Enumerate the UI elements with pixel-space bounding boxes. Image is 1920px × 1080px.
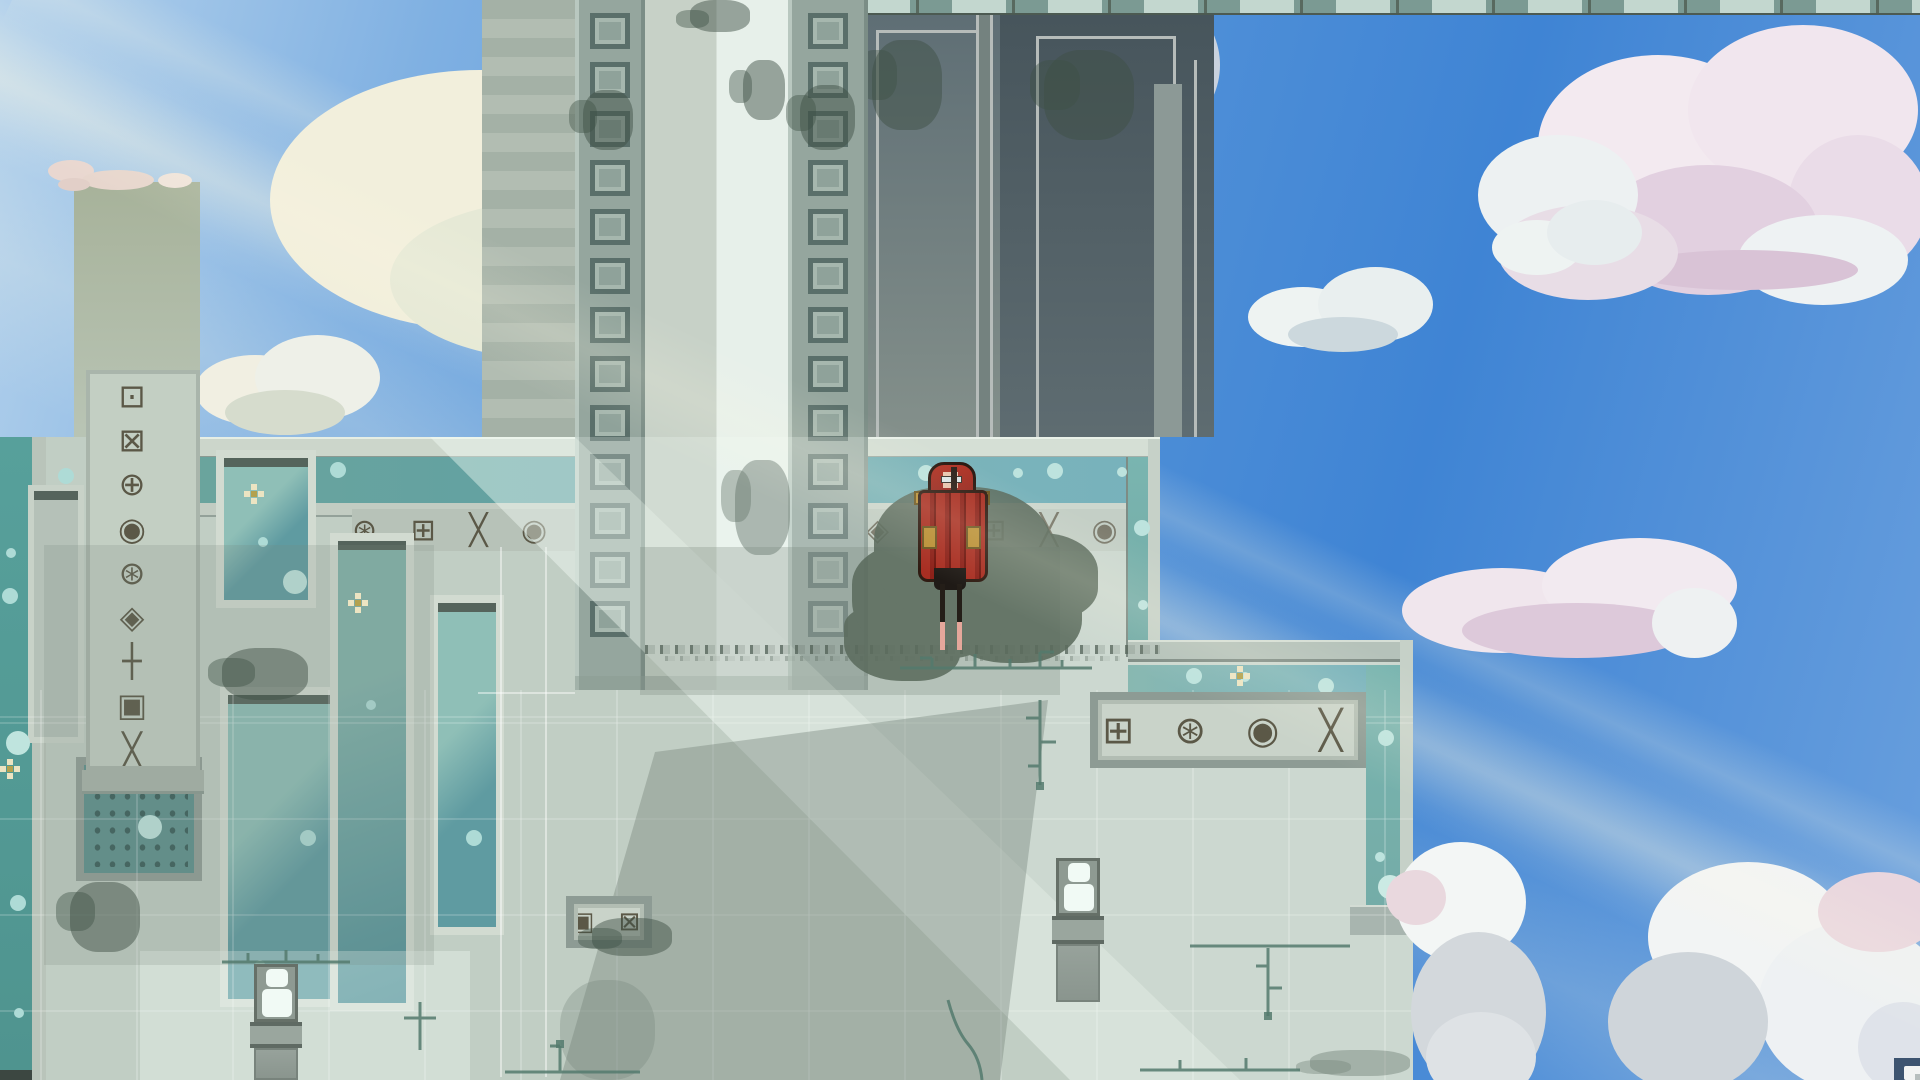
moss-patch	[872, 40, 942, 130]
cloud-puff	[1608, 952, 1768, 1080]
lamp-head	[254, 964, 298, 1022]
gold-sparkle	[7, 766, 13, 772]
pilaster-cell	[808, 405, 848, 441]
moss-patch	[800, 85, 855, 150]
cloud-midright	[1402, 528, 1737, 663]
tower-rubble-cap	[158, 173, 192, 188]
ornament-plaque-large: ⊛ ⊞ ⊛ ◉ ╳ ◈	[1090, 692, 1366, 768]
cloud-puff	[1386, 870, 1446, 925]
moss-patch	[743, 60, 785, 120]
cloud-puff	[225, 390, 345, 435]
game-viewport[interactable]: ⊛ ⊞ ╳ ◉ ⊠ ◈ ⊛ ⊞ ╳ ◉ ⊠ ◈	[0, 0, 1920, 1080]
cloud-puff	[1652, 588, 1737, 658]
pilaster-cell	[808, 209, 848, 245]
lamp-post	[1048, 858, 1108, 1002]
cloud-tiny	[1492, 200, 1642, 285]
moss-patch	[690, 0, 750, 32]
pilaster-cell	[808, 160, 848, 196]
lamp-glow	[266, 969, 288, 987]
character-shin	[940, 622, 945, 650]
building-panel-line	[1194, 60, 1197, 437]
character-belt-pouch	[922, 526, 937, 549]
moss-patch	[592, 918, 672, 956]
gold-sparkle	[355, 600, 361, 606]
building-pillar-strip	[979, 0, 990, 437]
moss-patch	[222, 648, 308, 700]
lamp-pedestal-bands	[1052, 916, 1104, 944]
pilaster-cell	[590, 209, 630, 245]
plaque-glyphs: ⊛ ⊞ ⊛ ◉ ╳ ◈	[1098, 700, 1358, 760]
building-panel-line	[990, 0, 993, 437]
pilaster-cell	[808, 307, 848, 343]
lamp-glow	[262, 989, 292, 1017]
pilaster-cell	[590, 405, 630, 441]
pilaster-cell	[590, 307, 630, 343]
moss-patch	[583, 90, 633, 150]
cloud-puff	[1547, 200, 1642, 265]
cloud-puff	[1288, 317, 1398, 352]
pilaster-cell	[808, 258, 848, 294]
cloud-bottomright	[1608, 862, 1920, 1080]
tower-rubble-cap	[82, 170, 154, 190]
dirt-edge-line	[640, 645, 1160, 654]
top-ledge-cap	[856, 0, 1920, 15]
lamp-glow	[1068, 863, 1090, 882]
corner-key-prompt	[1894, 1058, 1920, 1080]
building-panel-line	[876, 30, 976, 33]
key-shadow-pixel	[1915, 1074, 1920, 1080]
cloud-small-left	[195, 335, 380, 435]
lamp-shaft	[1056, 944, 1100, 1002]
moss-patch	[1044, 50, 1134, 140]
dark-building	[864, 0, 1214, 437]
player-character	[912, 462, 990, 654]
pilaster-cell	[590, 356, 630, 392]
gold-sparkle	[1237, 673, 1243, 679]
building-grey-slab	[1154, 84, 1182, 437]
cloud-tiny	[1248, 262, 1433, 352]
lamp-post	[244, 948, 308, 1080]
lamp-head	[1056, 858, 1100, 916]
pilaster-cell	[590, 160, 630, 196]
pilaster-cell	[590, 13, 630, 49]
lamp-shaft	[254, 1048, 298, 1080]
dirt-edge-line	[660, 656, 1120, 661]
character-shin	[957, 622, 962, 650]
pilaster-cell	[808, 356, 848, 392]
pilaster-cell	[808, 13, 848, 49]
moss-patch	[70, 882, 140, 952]
building-panel-line	[1036, 36, 1176, 39]
cast-shadow-blob	[560, 980, 655, 1080]
background-striped-slab	[482, 0, 578, 437]
lamp-pedestal-bands	[250, 1022, 302, 1048]
cloud-platform-edge	[1386, 842, 1556, 1080]
character-belt-pouch	[966, 526, 981, 549]
tower-rubble-cap	[58, 178, 90, 191]
pilaster-cell	[590, 258, 630, 294]
gold-sparkle	[251, 491, 257, 497]
lamp-glow	[1064, 884, 1094, 911]
